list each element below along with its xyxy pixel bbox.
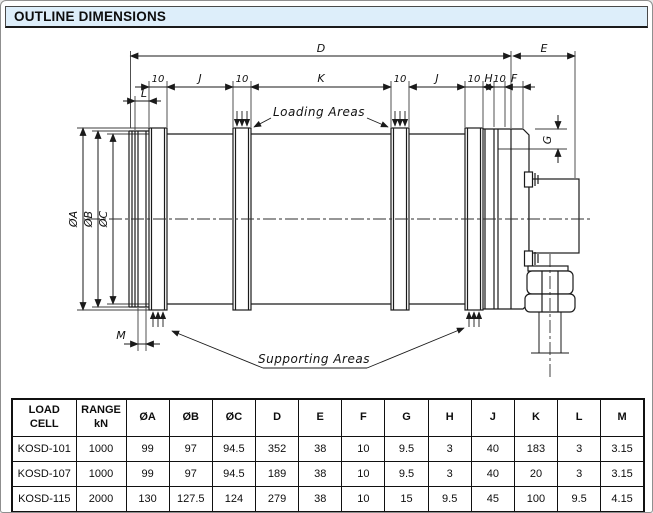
- dim-label-k: K: [317, 72, 325, 85]
- table-cell: 45: [471, 487, 514, 513]
- column-header: K: [514, 399, 557, 437]
- dim-label-10: 10: [468, 74, 481, 85]
- table-cell: 1000: [76, 462, 126, 487]
- dim-label-10: 10: [236, 74, 249, 85]
- column-header: ØC: [212, 399, 255, 437]
- body-outline: [129, 128, 579, 353]
- table-cell: 38: [299, 462, 342, 487]
- table-cell: 94.5: [212, 462, 255, 487]
- dim-label-e: E: [541, 42, 548, 55]
- column-header: M: [601, 399, 644, 437]
- datasheet-page: OUTLINE DIMENSIONS: [0, 0, 653, 513]
- table-cell: 3: [428, 462, 471, 487]
- table-cell: 100: [514, 487, 557, 513]
- table-cell: 3.15: [601, 437, 644, 462]
- dim-label-dia-c: ØC: [97, 211, 110, 229]
- table-cell: KOSD-115: [12, 487, 76, 513]
- dim-label-10: 10: [394, 74, 407, 85]
- table-cell: 130: [126, 487, 169, 513]
- table-row: KOSD-115 2000 130 127.5 124 279 38 10 15…: [12, 487, 644, 513]
- table-cell: 352: [255, 437, 298, 462]
- dimensions-table: LOAD CELL RANGE kN ØA ØB ØC D E F G H J …: [11, 398, 645, 513]
- table-cell: KOSD-101: [12, 437, 76, 462]
- table-cell: 3: [558, 462, 601, 487]
- loading-areas-label: Loading Areas: [273, 105, 365, 119]
- table-cell: 1000: [76, 437, 126, 462]
- dim-label-h: H: [484, 72, 492, 85]
- column-header: ØA: [126, 399, 169, 437]
- table-cell: 10: [342, 462, 385, 487]
- column-header: L: [558, 399, 601, 437]
- table-cell: 94.5: [212, 437, 255, 462]
- column-header: LOAD CELL: [12, 399, 76, 437]
- dim-label-m: M: [116, 329, 126, 342]
- table-cell: 97: [169, 437, 212, 462]
- table-cell: 97: [169, 462, 212, 487]
- dim-label-dia-b: ØB: [82, 211, 95, 228]
- table-cell: 2000: [76, 487, 126, 513]
- table-cell: 38: [299, 437, 342, 462]
- table-cell: KOSD-107: [12, 462, 76, 487]
- dim-label-10: 10: [493, 74, 506, 85]
- table-cell: 124: [212, 487, 255, 513]
- column-header: E: [299, 399, 342, 437]
- table-cell: 40: [471, 462, 514, 487]
- leader-lines: [172, 118, 464, 368]
- section-header: OUTLINE DIMENSIONS: [5, 6, 648, 28]
- column-header: RANGE kN: [76, 399, 126, 437]
- table-cell: 279: [255, 487, 298, 513]
- table-cell: 3: [428, 437, 471, 462]
- dim-label-j: J: [196, 72, 201, 85]
- column-header: J: [471, 399, 514, 437]
- table-cell: 10: [342, 487, 385, 513]
- table-row: KOSD-107 1000 99 97 94.5 189 38 10 9.5 3…: [12, 462, 644, 487]
- column-header: G: [385, 399, 428, 437]
- dim-label-l: L: [141, 87, 147, 100]
- column-header: ØB: [169, 399, 212, 437]
- column-header: D: [255, 399, 298, 437]
- table-cell: 127.5: [169, 487, 212, 513]
- dim-label-f: F: [511, 72, 518, 85]
- outline-drawing: D E 10 J 10 K 10 J 10 H 10 F L M G ØA ØB…: [1, 1, 653, 393]
- table-cell: 15: [385, 487, 428, 513]
- table-cell: 189: [255, 462, 298, 487]
- dim-label-d: D: [317, 42, 325, 55]
- table-cell: 99: [126, 437, 169, 462]
- table-cell: 40: [471, 437, 514, 462]
- dim-label-10: 10: [152, 74, 165, 85]
- table-cell: 4.15: [601, 487, 644, 513]
- column-header: H: [428, 399, 471, 437]
- table-cell: 20: [514, 462, 557, 487]
- table-cell: 38: [299, 487, 342, 513]
- table-cell: 3.15: [601, 462, 644, 487]
- dim-label-dia-a: ØA: [67, 211, 80, 228]
- table-cell: 10: [342, 437, 385, 462]
- table-cell: 183: [514, 437, 557, 462]
- table-cell: 3: [558, 437, 601, 462]
- dimensions-table-wrap: LOAD CELL RANGE kN ØA ØB ØC D E F G H J …: [11, 398, 645, 513]
- table-cell: 9.5: [385, 437, 428, 462]
- table-cell: 9.5: [428, 487, 471, 513]
- table-cell: 9.5: [558, 487, 601, 513]
- supporting-areas-label: Supporting Areas: [258, 352, 370, 366]
- table-header-row: LOAD CELL RANGE kN ØA ØB ØC D E F G H J …: [12, 399, 644, 437]
- table-cell: 9.5: [385, 462, 428, 487]
- table-row: KOSD-101 1000 99 97 94.5 352 38 10 9.5 3…: [12, 437, 644, 462]
- column-header: F: [342, 399, 385, 437]
- page-title: OUTLINE DIMENSIONS: [6, 9, 166, 24]
- dim-label-j: J: [433, 72, 438, 85]
- table-cell: 99: [126, 462, 169, 487]
- dim-label-g: G: [541, 136, 554, 145]
